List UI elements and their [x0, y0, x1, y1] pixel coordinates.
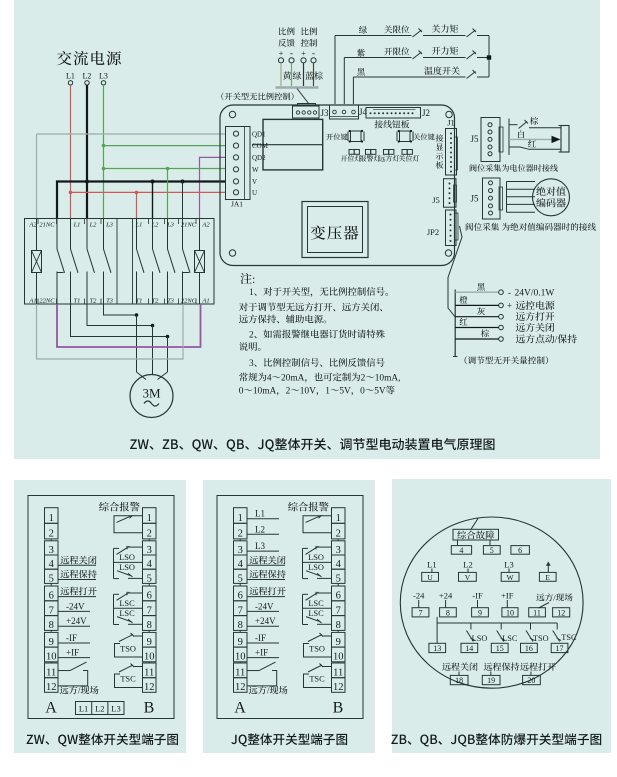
svg-text:L1: L1 [255, 509, 265, 519]
svg-text:19: 19 [487, 676, 495, 685]
svg-text:16: 16 [525, 644, 533, 653]
svg-text:J1: J1 [447, 118, 455, 128]
svg-text:开限位: 开限位 [384, 46, 410, 58]
svg-text:7: 7 [49, 605, 54, 616]
svg-text:2: 2 [336, 529, 341, 540]
svg-text:5: 5 [238, 573, 243, 584]
svg-text:V: V [252, 178, 257, 186]
svg-text:+: + [507, 301, 512, 311]
svg-text:9: 9 [478, 608, 482, 617]
svg-text:9: 9 [336, 637, 341, 648]
svg-text:+IF: +IF [66, 648, 79, 658]
svg-text:A2: A2 [201, 222, 210, 229]
svg-text:棕: 棕 [314, 69, 324, 82]
svg-text:比例: 比例 [278, 26, 296, 38]
svg-text:远方灯: 远方灯 [379, 154, 400, 164]
svg-text:12: 12 [144, 682, 155, 693]
svg-text:远程关闭: 远程关闭 [60, 552, 97, 566]
svg-text:7: 7 [336, 605, 341, 616]
svg-text:远程打开: 远程打开 [60, 584, 97, 598]
svg-text:白: 白 [517, 129, 526, 141]
svg-text:5: 5 [49, 573, 54, 584]
svg-text:橙: 橙 [459, 294, 468, 306]
svg-text:22NC: 22NC [39, 298, 55, 305]
svg-text:常规为4～20mA，也可定制为2～10mA,: 常规为4～20mA，也可定制为2～10mA, [239, 370, 401, 384]
svg-text:W: W [507, 573, 515, 582]
svg-text:TSO: TSO [309, 645, 325, 654]
svg-text:温度开关: 温度开关 [424, 64, 460, 77]
svg-text:（开关型无比例控制）: （开关型无比例控制） [216, 91, 299, 103]
svg-text:TSO: TSO [533, 634, 549, 643]
svg-text:-IF: -IF [255, 633, 266, 643]
svg-text:+24V: +24V [66, 616, 87, 626]
svg-text:2: 2 [147, 529, 152, 540]
svg-text:L3: L3 [111, 704, 120, 714]
svg-text:-24V: -24V [255, 601, 274, 611]
svg-text:灰: 灰 [477, 305, 486, 317]
svg-text:TSO: TSO [120, 645, 136, 654]
svg-text:L1: L1 [427, 560, 436, 570]
svg-text:远方/现场: 远方/现场 [536, 592, 573, 604]
svg-text:0～10mA，2～10V，1～5V，0～5V等: 0～10mA，2～10V，1～5V，0～5V等 [239, 383, 395, 397]
svg-text:7: 7 [238, 605, 243, 616]
svg-text:2、如需报警继电器订货时请特殊: 2、如需报警继电器订货时请特殊 [249, 327, 386, 341]
svg-text:12: 12 [333, 682, 344, 693]
svg-text:+24: +24 [439, 591, 453, 601]
svg-text:红: 红 [459, 316, 468, 328]
svg-text:11: 11 [235, 667, 245, 678]
svg-text:18: 18 [455, 676, 463, 685]
svg-text:阀位采集为电位器时接线: 阀位采集为电位器时接线 [469, 163, 558, 174]
svg-text:+IF: +IF [255, 648, 268, 658]
svg-text:W: W [252, 166, 259, 174]
svg-text:远方保持、辅助电源。: 远方保持、辅助电源。 [239, 312, 333, 326]
svg-text:5: 5 [147, 573, 152, 584]
svg-text:LSO: LSO [472, 634, 488, 643]
svg-text:远程打开: 远程打开 [520, 660, 556, 673]
svg-text:绿: 绿 [292, 69, 301, 82]
svg-text:+: + [301, 48, 306, 58]
svg-text:LSO: LSO [308, 563, 324, 572]
svg-text:L1: L1 [66, 72, 75, 81]
svg-text:说明。: 说明。 [239, 339, 267, 353]
svg-text:11: 11 [144, 667, 154, 678]
svg-text:开位灯: 开位灯 [341, 154, 362, 164]
svg-text:6: 6 [49, 591, 54, 602]
svg-text:QD1: QD1 [252, 130, 266, 138]
svg-text:5: 5 [336, 573, 341, 584]
svg-text:8: 8 [446, 608, 450, 617]
svg-text:L2: L2 [463, 560, 472, 570]
svg-text:L3: L3 [504, 560, 513, 570]
svg-text:4: 4 [459, 546, 463, 555]
svg-text:L2: L2 [89, 222, 98, 229]
svg-text:8: 8 [336, 620, 341, 631]
svg-text:1: 1 [238, 513, 243, 524]
svg-text:关位灯: 关位灯 [399, 154, 420, 164]
svg-text:8: 8 [49, 620, 54, 631]
svg-text:开位键: 开位键 [326, 133, 349, 143]
svg-text:（调节型无开关量控制）: （调节型无开关量控制） [459, 355, 554, 367]
svg-text:黄: 黄 [282, 69, 292, 82]
svg-text:红: 红 [528, 138, 537, 150]
svg-text:关力矩: 关力矩 [431, 22, 458, 35]
svg-text:21NC: 21NC [39, 222, 55, 229]
svg-text:6: 6 [518, 546, 522, 555]
svg-text:棕: 棕 [481, 328, 490, 340]
svg-text:A: A [45, 700, 57, 717]
svg-text:11: 11 [46, 667, 56, 678]
svg-text:A1: A1 [201, 298, 209, 305]
svg-text:ZB、QB、JQB整体防爆开关型端子图: ZB、QB、JQB整体防爆开关型端子图 [391, 729, 602, 748]
svg-text:7: 7 [147, 605, 152, 616]
svg-text:11: 11 [533, 608, 541, 617]
svg-text:-: - [508, 288, 511, 298]
svg-text:5: 5 [490, 546, 494, 555]
svg-text:LSC: LSC [308, 609, 324, 618]
svg-text:U: U [427, 573, 433, 582]
svg-text:4: 4 [238, 559, 244, 570]
svg-text:21NC: 21NC [181, 222, 197, 229]
svg-text:3: 3 [147, 545, 152, 556]
svg-text:8: 8 [238, 620, 243, 631]
svg-text:14: 14 [465, 644, 473, 653]
svg-text:远程打开: 远程打开 [249, 584, 286, 598]
svg-text:JP2: JP2 [427, 227, 439, 237]
svg-text:T2: T2 [90, 298, 98, 305]
svg-text:阀位采集 为绝对值编码器时的接线: 阀位采集 为绝对值编码器时的接线 [465, 221, 596, 233]
svg-text:LSC: LSC [502, 634, 518, 643]
svg-text:远程保持: 远程保持 [60, 567, 97, 581]
svg-text:TSC: TSC [309, 675, 325, 684]
svg-text:LSO: LSO [308, 553, 324, 562]
svg-text:变压器: 变压器 [310, 222, 360, 244]
svg-text:2: 2 [238, 529, 243, 540]
svg-text:17: 17 [556, 644, 564, 653]
svg-text:远程关闭: 远程关闭 [249, 552, 286, 566]
svg-text:10: 10 [333, 652, 344, 663]
svg-text:棕: 棕 [530, 115, 539, 127]
svg-text:-24: -24 [413, 591, 425, 601]
svg-text:TSC: TSC [120, 675, 136, 684]
svg-text:L2: L2 [151, 222, 160, 229]
svg-text:T1: T1 [74, 298, 81, 305]
svg-text:L1: L1 [79, 704, 88, 714]
svg-text:1: 1 [336, 513, 341, 524]
svg-text:10: 10 [46, 652, 57, 663]
svg-text:黑: 黑 [357, 66, 366, 78]
svg-text:-IF: -IF [66, 633, 77, 643]
svg-text:-24V: -24V [66, 601, 85, 611]
svg-text:蓝: 蓝 [305, 69, 314, 82]
svg-text:L3: L3 [255, 541, 265, 551]
svg-text:T3: T3 [106, 298, 114, 305]
svg-text:4: 4 [147, 559, 153, 570]
svg-text:+24V: +24V [255, 616, 276, 626]
svg-text:JQ整体开关型端子图: JQ整体开关型端子图 [231, 729, 348, 748]
svg-text:4: 4 [336, 559, 342, 570]
svg-text:1、对于开关型，无比例控制信号。: 1、对于开关型，无比例控制信号。 [249, 284, 394, 298]
svg-text:接显示板: 接显示板 [436, 133, 445, 171]
svg-text:远方/现场: 远方/现场 [60, 683, 99, 697]
svg-text:6: 6 [147, 591, 152, 602]
svg-text:关位键: 关位键 [413, 133, 436, 143]
svg-text:J5: J5 [470, 194, 479, 204]
svg-text:3、比例控制信号、比例反馈信号: 3、比例控制信号、比例反馈信号 [249, 355, 385, 369]
svg-text:LSO: LSO [119, 553, 135, 562]
svg-text:6: 6 [336, 591, 341, 602]
svg-text:1: 1 [147, 513, 152, 524]
svg-text:1: 1 [49, 513, 54, 524]
svg-text:远方点动/保持: 远方点动/保持 [516, 332, 578, 346]
svg-text:J2: J2 [422, 108, 430, 118]
svg-text:JA1: JA1 [231, 200, 243, 209]
svg-text:A1: A1 [28, 298, 36, 305]
svg-text:综合故障: 综合故障 [457, 527, 495, 541]
svg-text:-IF: -IF [472, 591, 483, 601]
svg-text:22NC: 22NC [181, 298, 197, 305]
svg-text:L2: L2 [83, 72, 92, 81]
svg-text:编码器: 编码器 [536, 195, 566, 210]
svg-text:L3: L3 [99, 72, 108, 81]
svg-text:10: 10 [235, 652, 246, 663]
svg-text:3: 3 [49, 545, 54, 556]
svg-text:LSC: LSC [308, 599, 324, 608]
svg-text:L2: L2 [255, 524, 265, 534]
svg-text:B: B [333, 700, 344, 717]
svg-text:8: 8 [147, 620, 152, 631]
svg-text:远程关闭: 远程关闭 [442, 660, 478, 673]
svg-text:LSO: LSO [119, 563, 135, 572]
svg-text:L1: L1 [73, 222, 81, 229]
svg-text:交流电源: 交流电源 [56, 47, 122, 69]
svg-text:远方/现场: 远方/现场 [249, 683, 288, 697]
svg-text:V: V [465, 573, 471, 582]
svg-text:U: U [252, 189, 257, 197]
svg-text:20: 20 [527, 676, 535, 685]
svg-text:9: 9 [49, 637, 54, 648]
svg-text:3M: 3M [142, 386, 161, 401]
svg-text:4: 4 [49, 559, 55, 570]
svg-text:9: 9 [147, 637, 152, 648]
svg-text:远程保持: 远程保持 [249, 567, 286, 581]
svg-text:ZW、QW整体开关型端子图: ZW、QW整体开关型端子图 [26, 729, 179, 748]
svg-text:J5: J5 [470, 134, 479, 144]
svg-text:12: 12 [557, 608, 565, 617]
svg-text:接线钮板: 接线钮板 [374, 117, 409, 130]
svg-text:开力矩: 开力矩 [431, 44, 458, 57]
svg-text:QD2: QD2 [252, 154, 266, 162]
svg-text:13: 13 [433, 644, 441, 653]
svg-text:TSC: TSC [561, 633, 577, 642]
svg-text:9: 9 [238, 637, 243, 648]
svg-text:B: B [144, 700, 155, 717]
svg-text:7: 7 [419, 608, 423, 617]
svg-text:L3: L3 [105, 222, 114, 229]
svg-text:3: 3 [336, 545, 341, 556]
svg-text:LSC: LSC [119, 609, 135, 618]
svg-text:综合报警: 综合报警 [99, 499, 140, 514]
svg-text:12: 12 [235, 682, 246, 693]
svg-text:+IF: +IF [501, 591, 514, 601]
svg-text:COM: COM [252, 142, 269, 150]
svg-text:黑: 黑 [477, 281, 486, 293]
svg-text:10: 10 [144, 652, 155, 663]
svg-text:比例: 比例 [300, 26, 318, 38]
svg-text:E: E [545, 573, 550, 582]
svg-text:L2: L2 [95, 704, 104, 714]
svg-text:T3: T3 [167, 298, 175, 305]
svg-text:综合报警: 综合报警 [288, 499, 329, 514]
svg-text:LSC: LSC [119, 599, 135, 608]
svg-text:J3: J3 [321, 108, 330, 118]
svg-text:报警灯: 报警灯 [360, 154, 381, 164]
svg-text:2: 2 [49, 529, 54, 540]
svg-text:绿: 绿 [359, 24, 368, 36]
svg-text:10: 10 [506, 608, 514, 617]
svg-text:12: 12 [46, 682, 57, 693]
svg-text:关限位: 关限位 [384, 24, 410, 36]
svg-text:+: + [279, 48, 284, 58]
svg-text:6: 6 [238, 591, 243, 602]
svg-text:远程保持: 远程保持 [483, 660, 519, 673]
svg-text:15: 15 [496, 644, 504, 653]
svg-text:L1: L1 [135, 222, 143, 229]
svg-text:J5: J5 [432, 195, 440, 205]
svg-text:11: 11 [333, 667, 343, 678]
svg-text:A: A [234, 700, 246, 717]
svg-text:ZW、ZB、QW、QB、JQ整体开关、调节型电动装置电气原理: ZW、ZB、QW、QB、JQ整体开关、调节型电动装置电气原理图 [130, 434, 496, 453]
svg-text:3: 3 [238, 545, 243, 556]
